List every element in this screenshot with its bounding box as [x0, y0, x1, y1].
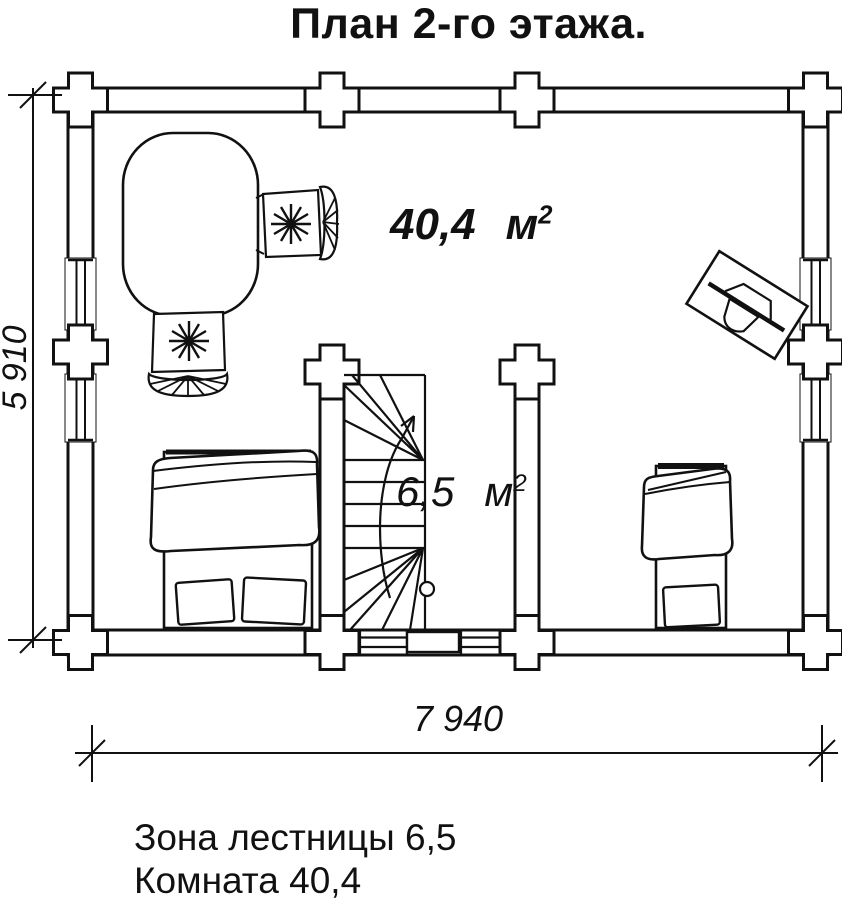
legend: Зона лестницы 6,5 Комната 40,4	[134, 816, 456, 900]
legend-line-stairs: Зона лестницы 6,5	[134, 816, 456, 859]
stairs-area-unit: м2	[484, 468, 526, 516]
chair-bottom	[149, 312, 228, 397]
legend-line-room: Комната 40,4	[134, 859, 456, 900]
floor-plan-drawing	[0, 0, 842, 900]
right-wall-mid-notch	[789, 325, 842, 379]
window-bottom-right	[461, 630, 500, 655]
window-right-upper	[800, 258, 831, 330]
corner-notch-top-left	[54, 73, 108, 127]
bottom-wall-panel	[407, 632, 459, 652]
corner-notch-top-right	[789, 73, 842, 127]
room-area-unit: м2	[506, 200, 553, 250]
stair-newel-post	[420, 582, 434, 596]
chair-right	[256, 187, 339, 260]
table-top	[123, 133, 258, 316]
horizontal-dimension-label: 7 940	[358, 698, 558, 740]
room-area-value: 40,4	[390, 200, 476, 250]
bed-pillow	[663, 585, 720, 628]
corner-notch-bottom-left	[54, 616, 108, 670]
window-left-upper	[65, 258, 96, 330]
window-right-lower	[800, 374, 831, 442]
stair-winder-fan-lower	[344, 548, 423, 630]
stairwell-right-top-notch	[500, 345, 554, 399]
top-wall-notch-right	[500, 73, 554, 127]
bed-blanket	[151, 451, 320, 552]
top-wall-notch-left	[305, 73, 359, 127]
single-bed	[642, 466, 732, 628]
floor-plan-page: План 2-го этажа. 40,4 м2 6,5 м2 5 910 7 …	[0, 0, 842, 900]
window-bottom-left	[360, 630, 407, 655]
left-wall-mid-notch	[54, 325, 108, 379]
vertical-dimension-label: 5 910	[0, 258, 40, 478]
double-bed	[151, 451, 320, 628]
page-title: План 2-го этажа.	[0, 0, 842, 49]
stairs-area-label: 6,5 м2	[396, 468, 527, 516]
corner-notch-bottom-right	[789, 616, 842, 670]
bed-pillow-right	[242, 577, 306, 624]
room-area-label: 40,4 м2	[390, 200, 552, 250]
dining-table-group	[123, 133, 339, 397]
stairs-area-value: 6,5	[396, 468, 454, 516]
bed-pillow-left	[176, 579, 235, 625]
bottom-wall-notch-right	[500, 616, 554, 670]
window-left-lower	[65, 374, 96, 442]
